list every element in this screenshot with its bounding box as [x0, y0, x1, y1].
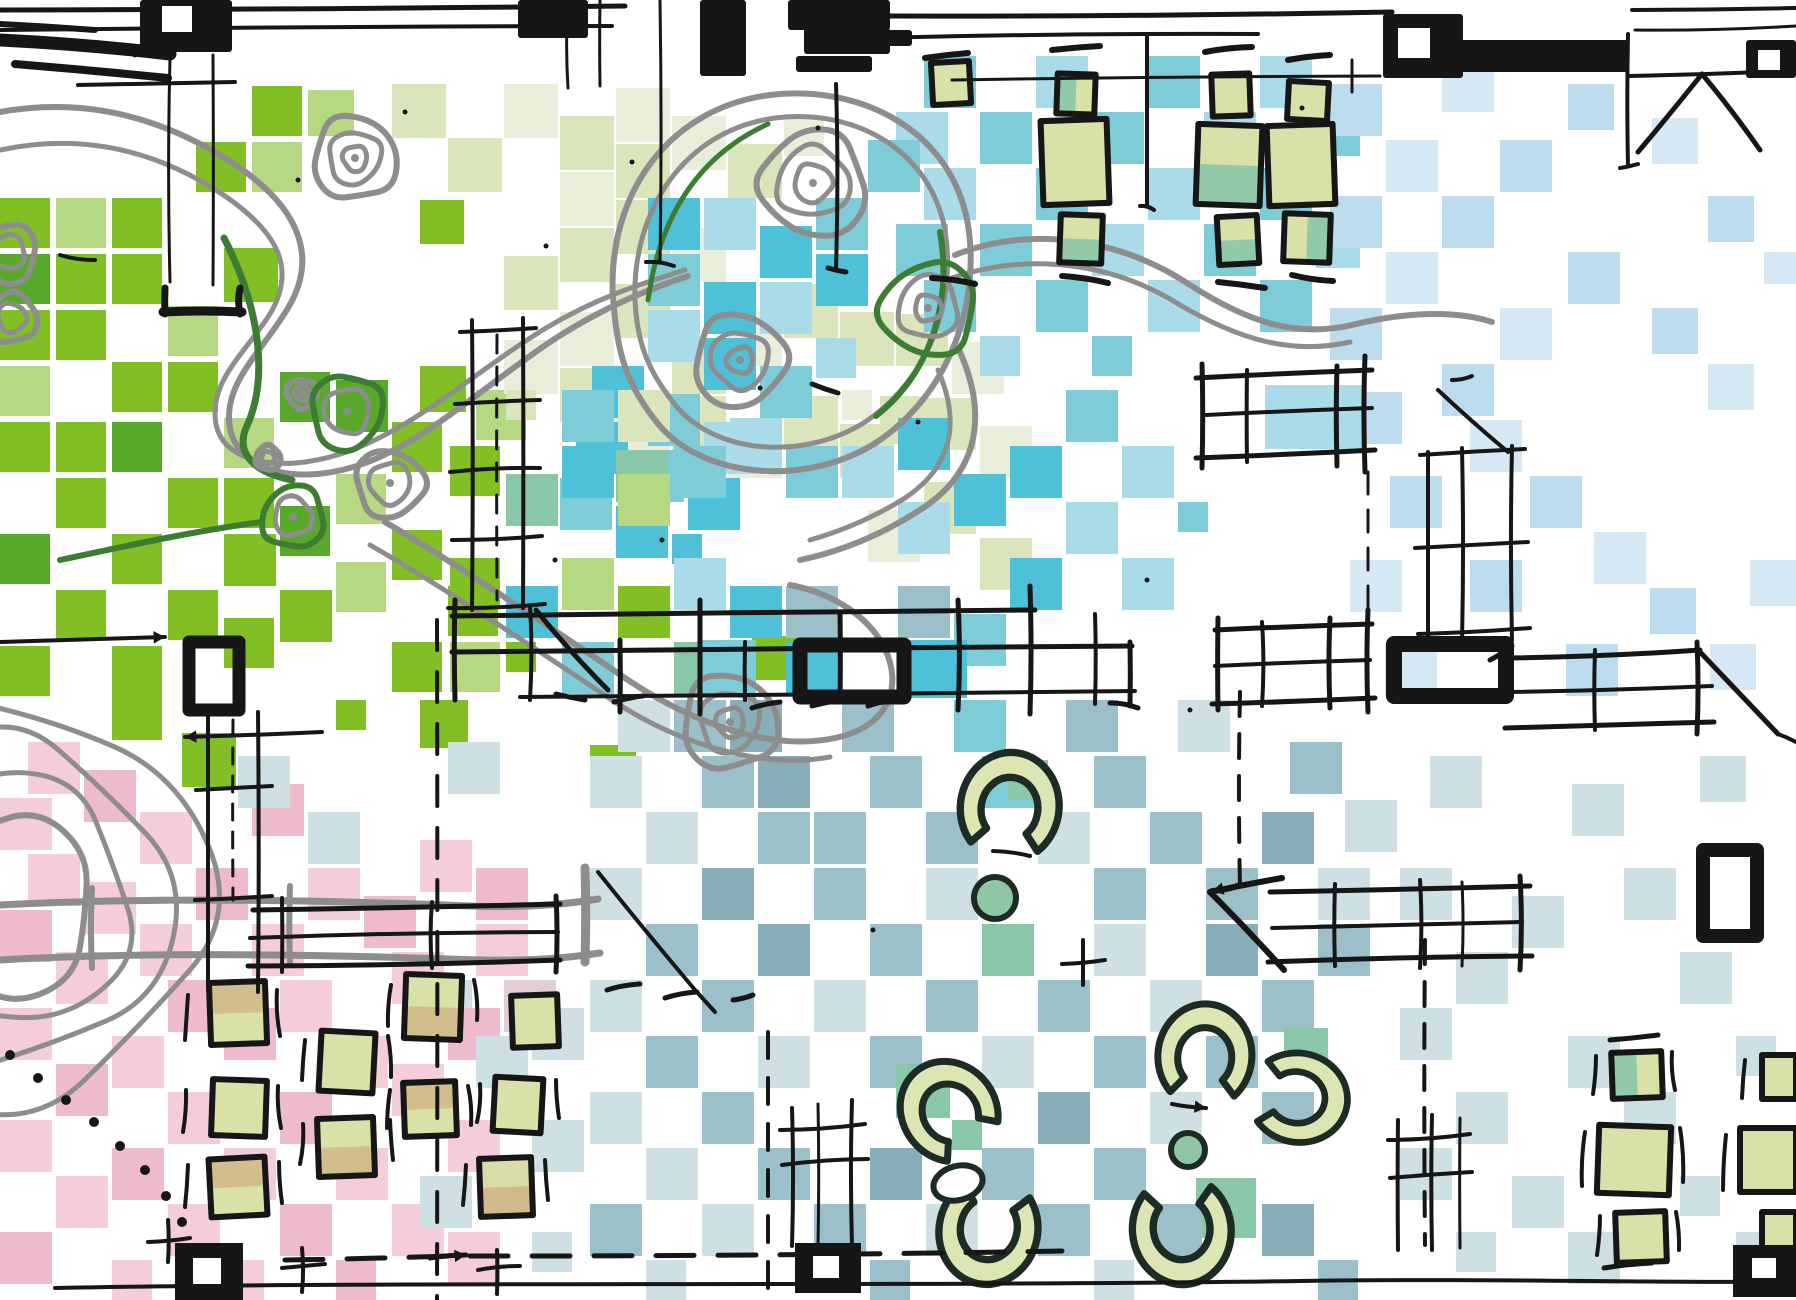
table	[211, 1079, 267, 1137]
table-top	[511, 994, 559, 1048]
mosaic-tile	[1470, 560, 1522, 612]
tree-center-dot	[351, 154, 359, 162]
table	[493, 1077, 544, 1133]
sketch-line	[1095, 614, 1096, 704]
sketch-line	[1030, 586, 1031, 714]
mosaic-tile	[618, 390, 670, 442]
sketch-line	[1364, 356, 1365, 472]
table-top	[318, 1031, 375, 1094]
sketch-line	[1334, 884, 1335, 966]
table-top	[931, 61, 971, 105]
mosaic-tile	[56, 478, 106, 528]
mosaic-tile	[1350, 560, 1402, 612]
mosaic-tile	[476, 868, 528, 920]
sketch-line	[1462, 882, 1463, 966]
mosaic-tile	[1066, 700, 1118, 752]
ink-speck	[403, 110, 408, 115]
mosaic-tile	[1652, 308, 1698, 354]
mosaic-tile	[0, 910, 52, 962]
mosaic-tile	[560, 116, 614, 170]
mosaic-tile	[1512, 1176, 1564, 1228]
table	[403, 1081, 457, 1137]
mosaic-tile	[1456, 952, 1508, 1004]
wall-segment	[518, 0, 588, 38]
table	[1597, 1125, 1671, 1195]
mosaic-tile	[1150, 812, 1202, 864]
mosaic-tile	[1500, 308, 1552, 360]
sketch-line	[472, 320, 473, 610]
table	[1740, 1128, 1796, 1192]
mosaic-tile	[562, 390, 614, 442]
sketch-line	[1336, 366, 1337, 466]
mosaic-tile	[1568, 1232, 1620, 1284]
ink-speck	[871, 928, 876, 933]
table	[1059, 214, 1103, 263]
mosaic-tile	[702, 1204, 754, 1256]
mosaic-tile	[560, 172, 614, 226]
mosaic-tile	[1386, 140, 1438, 192]
mosaic-tile	[982, 1036, 1034, 1088]
mosaic-tile	[1330, 308, 1382, 360]
sketch-line	[530, 606, 531, 700]
mosaic-tile	[1650, 588, 1696, 634]
table-top-accent	[479, 1157, 532, 1188]
mosaic-tile	[982, 924, 1034, 976]
mosaic-tile	[252, 86, 302, 136]
dotted-path-dot	[140, 1165, 150, 1175]
mosaic-tile	[1750, 560, 1796, 606]
mosaic-tile	[308, 812, 360, 864]
fence-post	[289, 886, 290, 964]
mosaic-tile	[1318, 924, 1370, 976]
mosaic-tile	[1700, 756, 1746, 802]
mosaic-tile	[870, 1260, 910, 1300]
mosaic-tile	[1122, 446, 1174, 498]
sketch-line	[851, 1100, 852, 1246]
mosaic-tile	[562, 558, 614, 610]
stool	[974, 877, 1016, 919]
mosaic-tile	[392, 84, 446, 138]
mosaic-tile	[814, 868, 866, 920]
mosaic-tile	[1680, 952, 1732, 1004]
tree-center-dot	[343, 407, 351, 415]
table	[1611, 1051, 1663, 1099]
dotted-path-dot	[115, 1141, 125, 1151]
mosaic-tile	[112, 198, 162, 248]
mosaic-tile	[562, 446, 614, 498]
mosaic-tile	[816, 338, 856, 378]
wall-segment	[700, 0, 746, 76]
table-top	[1762, 1055, 1796, 1099]
mosaic-tile	[1500, 140, 1552, 192]
table-top	[1740, 1128, 1796, 1192]
mosaic-tile	[954, 474, 1006, 526]
dotted-path-dot	[161, 1191, 171, 1201]
table	[318, 1031, 375, 1094]
ink-speck	[1300, 106, 1305, 111]
ink-speck	[133, 53, 138, 58]
mosaic-tile	[704, 282, 756, 334]
mosaic-tile	[1038, 1092, 1090, 1144]
mosaic-tile	[0, 798, 52, 850]
table-top	[1211, 73, 1250, 116]
wall-notch	[1398, 28, 1430, 58]
mosaic-tile	[590, 1092, 642, 1144]
mosaic-tile	[870, 756, 922, 808]
mosaic-tile	[112, 422, 162, 472]
table	[1211, 73, 1250, 116]
ink-speck	[1188, 708, 1193, 713]
tree-center-dot	[924, 304, 932, 312]
mosaic-tile	[1680, 1176, 1720, 1216]
mosaic-tile	[112, 690, 162, 740]
mosaic-tile	[672, 116, 726, 170]
table-top	[1267, 124, 1336, 206]
mosaic-tile	[112, 362, 162, 412]
table	[404, 974, 462, 1040]
mosaic-tile	[0, 366, 50, 416]
mosaic-tile	[1148, 168, 1200, 220]
table	[931, 61, 971, 105]
mosaic-tile	[954, 700, 1006, 752]
tree-center-dot	[736, 356, 744, 364]
mosaic-tile	[870, 1148, 922, 1200]
dotted-path-dot	[187, 1243, 197, 1253]
mosaic-tile	[56, 1176, 108, 1228]
mosaic-tile	[0, 534, 50, 584]
tree-center-dot	[298, 389, 306, 397]
fence-post	[585, 868, 586, 962]
mosaic-tile	[1094, 756, 1146, 808]
sketch-line	[1262, 622, 1263, 706]
column-core	[813, 1256, 839, 1278]
table	[1041, 119, 1110, 205]
wall-segment	[788, 0, 890, 30]
ink-speck	[758, 386, 763, 391]
table	[317, 1117, 375, 1177]
dotted-path-dot	[33, 1073, 43, 1083]
mosaic-tile	[504, 84, 558, 138]
mosaic-tile	[506, 390, 536, 420]
dotted-path-dot	[177, 1217, 187, 1227]
mosaic-tile	[1094, 924, 1146, 976]
mosaic-tile	[1430, 756, 1482, 808]
dotted-path-dot	[61, 1095, 71, 1105]
mosaic-tile	[1708, 364, 1754, 410]
mosaic-tile	[238, 756, 290, 808]
column-core	[1752, 1258, 1776, 1278]
sketch-line	[818, 1104, 819, 1248]
mosaic-tile	[1568, 252, 1620, 304]
mosaic-tile	[1036, 280, 1088, 332]
mosaic-tile	[1442, 364, 1494, 416]
dotted-path-dot	[89, 1117, 99, 1127]
table	[209, 1157, 268, 1218]
sketch-line	[454, 600, 455, 700]
mosaic-tile	[646, 1036, 698, 1088]
sketch-line	[1052, 46, 1100, 50]
mosaic-tile	[646, 924, 698, 976]
mosaic-tile	[1708, 196, 1754, 242]
mosaic-tile	[168, 362, 218, 412]
tree-center-dot	[386, 479, 394, 487]
mosaic-tile	[704, 198, 756, 250]
mosaic-tile	[758, 924, 810, 976]
column-core	[193, 1258, 221, 1284]
mosaic-tile	[1066, 390, 1118, 442]
mosaic-tile	[336, 1260, 376, 1300]
ink-speck	[1145, 578, 1150, 583]
mosaic-tile	[1094, 868, 1146, 920]
mosaic-tile	[1038, 980, 1090, 1032]
sketch-line	[1329, 618, 1330, 708]
table-top	[211, 1079, 267, 1137]
sketch-line	[1632, 8, 1796, 10]
mosaic-tile	[56, 422, 106, 472]
mosaic-tile	[1390, 476, 1442, 528]
sketch-line	[1594, 650, 1595, 730]
mosaic-tile	[926, 868, 978, 920]
mosaic-tile	[168, 590, 218, 640]
mosaic-tile	[0, 1232, 52, 1284]
wall-segment	[868, 30, 912, 46]
mosaic-tile	[28, 854, 80, 906]
mosaic-tile	[280, 590, 332, 642]
ink-speck	[660, 538, 665, 543]
mosaic-tile	[814, 980, 866, 1032]
mosaic-tile	[1386, 252, 1438, 304]
sketch-line	[958, 600, 959, 710]
mosaic-tile	[112, 254, 162, 304]
ink-speck	[544, 244, 549, 249]
mosaic-tile	[1148, 56, 1200, 108]
mosaic-tile	[758, 812, 810, 864]
mosaic-tile	[1568, 84, 1614, 130]
table	[1196, 124, 1263, 206]
sketch-line	[258, 712, 259, 992]
table-top	[1041, 119, 1110, 205]
fence-post	[91, 888, 92, 968]
mosaic-tile	[506, 474, 558, 526]
mosaic-tile	[1066, 502, 1118, 554]
mosaic-tile	[1094, 1148, 1146, 1200]
mosaic-tile	[1624, 868, 1676, 920]
stool	[1171, 1133, 1205, 1167]
mosaic-tile	[504, 256, 558, 310]
dotted-path-dot	[5, 1050, 15, 1060]
mosaic-tile	[980, 112, 1032, 164]
table	[511, 994, 559, 1048]
mosaic-tile	[702, 868, 754, 920]
sketch-line	[1202, 364, 1203, 468]
table	[1615, 1211, 1667, 1263]
mosaic-tile	[1265, 385, 1365, 449]
sketch-line	[169, 58, 170, 282]
ink-speck	[296, 178, 301, 183]
mosaic-tile	[0, 422, 50, 472]
sketch-line	[1520, 876, 1521, 970]
mosaic-tile	[590, 1204, 642, 1256]
mosaic-tile	[814, 812, 866, 864]
mosaic-tile	[702, 1092, 754, 1144]
mosaic-tile	[336, 562, 386, 612]
sketch-line	[302, 1248, 303, 1292]
ink-speck	[553, 558, 558, 563]
table-top	[1287, 81, 1329, 121]
mosaic-tile	[926, 980, 978, 1032]
mosaic-tile	[1094, 1036, 1146, 1088]
mosaic-tile	[648, 310, 700, 362]
mosaic-tile	[646, 1148, 698, 1200]
mosaic-tile	[1010, 558, 1062, 610]
mosaic-tile	[168, 478, 218, 528]
table-top	[1597, 1125, 1671, 1195]
table-top-accent	[1196, 164, 1261, 206]
mosaic-tile	[758, 756, 810, 808]
mosaic-tile	[758, 1036, 810, 1088]
wall-notch	[162, 6, 192, 32]
table	[1217, 215, 1259, 265]
mosaic-tile	[1530, 476, 1582, 528]
mosaic-tile	[448, 742, 500, 794]
mosaic-tile	[56, 1064, 108, 1116]
mosaic-tile	[646, 1260, 686, 1300]
mosaic-tile	[280, 980, 332, 1032]
table-top-accent	[404, 1006, 461, 1040]
mosaic-tile	[112, 1148, 164, 1200]
mosaic-tile	[1262, 1204, 1314, 1256]
ink-speck	[816, 126, 821, 131]
mosaic-tile	[112, 646, 162, 696]
sketch-line	[1431, 1115, 1432, 1250]
mosaic-tile	[308, 868, 360, 920]
mosaic-tile	[1456, 1232, 1496, 1272]
mosaic-tile	[56, 254, 106, 304]
sketch-line	[660, 0, 661, 262]
tree-center-dot	[809, 179, 817, 187]
wall-segment	[1460, 40, 1628, 72]
table	[1283, 213, 1331, 263]
mosaic-tile	[646, 812, 698, 864]
table-top	[1615, 1211, 1667, 1263]
mosaic-tile	[1400, 868, 1452, 920]
mosaic-tile	[196, 868, 248, 920]
mosaic-tile	[618, 474, 670, 526]
table	[1287, 81, 1329, 121]
mosaic-tile	[140, 924, 192, 976]
mosaic-tile	[0, 646, 50, 696]
mosaic-tile	[560, 228, 614, 282]
table	[1267, 124, 1336, 206]
mosaic-tile	[1010, 446, 1062, 498]
mosaic-tile	[532, 1232, 572, 1272]
mosaic-tile	[1262, 812, 1314, 864]
mosaic-tile	[952, 1120, 982, 1150]
table	[479, 1157, 533, 1217]
sketch-line	[163, 311, 242, 312]
mosaic-tile	[56, 590, 106, 640]
mosaic-tile	[1764, 252, 1796, 284]
mosaic-tile	[1345, 800, 1397, 852]
mosaic-tile	[1330, 84, 1382, 136]
mosaic-tile	[112, 1260, 152, 1300]
mosaic-tile	[1442, 196, 1494, 248]
mosaic-tile	[56, 198, 106, 248]
mosaic-tile	[448, 138, 502, 192]
mosaic-tile	[1594, 532, 1646, 584]
mosaic-tile	[982, 1148, 1034, 1200]
mosaic-tile	[870, 924, 922, 976]
mosaic-tile	[56, 310, 106, 360]
mosaic-tile	[336, 700, 366, 730]
wall-notch	[1758, 50, 1780, 70]
mosaic-tile	[420, 200, 464, 244]
mosaic-tile	[758, 1148, 810, 1200]
mosaic-tile	[0, 1120, 52, 1172]
sketch-line	[836, 84, 837, 268]
mosaic-tile	[1038, 1204, 1090, 1256]
tree-center-dot	[726, 718, 734, 726]
table-top	[493, 1077, 544, 1133]
mosaic-tile	[1178, 700, 1230, 752]
ink-speck	[630, 160, 635, 165]
sketch-line	[1697, 642, 1698, 734]
floor-plan-sketch	[0, 0, 1796, 1300]
mosaic-tile	[392, 642, 442, 692]
mosaic-tile	[980, 336, 1020, 376]
mosaic-tile	[1572, 784, 1624, 836]
ink-speck	[916, 420, 921, 425]
mosaic-tile	[842, 390, 872, 420]
mosaic-tile	[1318, 868, 1370, 920]
mosaic-tile	[1178, 502, 1208, 532]
sketch-line	[1420, 880, 1421, 968]
mosaic-tile	[280, 1204, 332, 1256]
mosaic-tile	[1092, 336, 1132, 376]
sketch-line	[556, 896, 557, 972]
mosaic-tile	[816, 254, 868, 306]
table	[1762, 1055, 1796, 1099]
wall-segment	[796, 56, 872, 72]
tree-center-dot	[289, 513, 297, 521]
mosaic-tile	[420, 840, 472, 892]
mosaic-tile	[590, 756, 642, 808]
sketch-line	[431, 902, 432, 968]
mosaic-tile	[1122, 558, 1174, 610]
plan-canvas	[0, 0, 1796, 1300]
mosaic-tile	[1094, 1260, 1134, 1300]
mosaic-tile	[1262, 980, 1314, 1032]
mosaic-tile	[1290, 742, 1342, 794]
mosaic-tile	[420, 700, 468, 748]
